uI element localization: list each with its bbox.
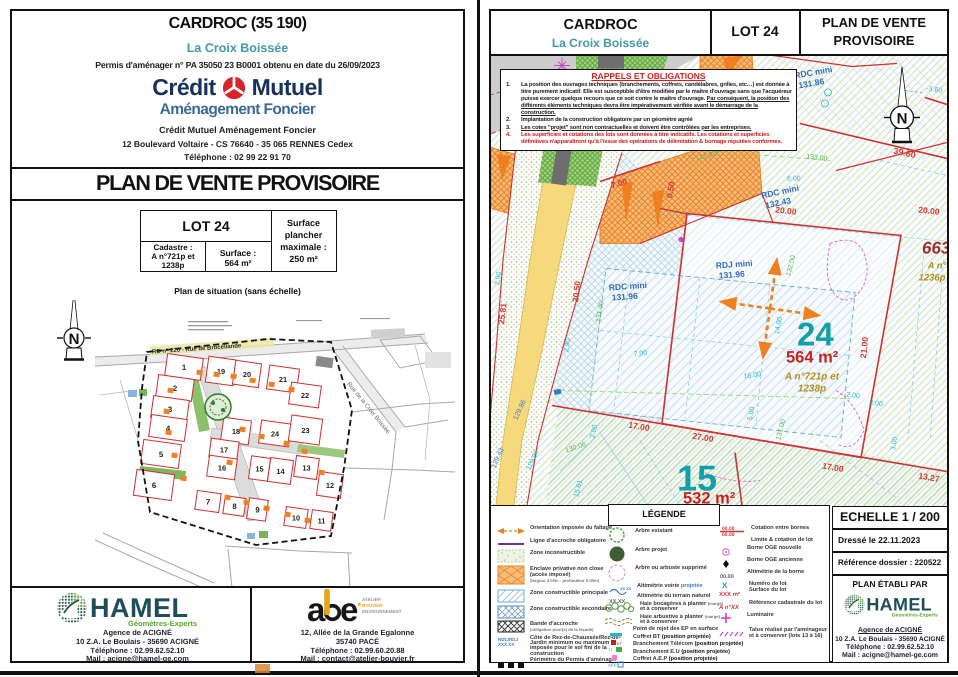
svg-text:24: 24	[271, 430, 280, 439]
svg-text:131.96: 131.96	[718, 268, 745, 280]
svg-text:00.00: 00.00	[722, 532, 735, 538]
svg-text:7: 7	[206, 498, 210, 507]
svg-text:23: 23	[301, 426, 309, 435]
svg-text:8: 8	[232, 502, 237, 511]
svg-text:ATELIER: ATELIER	[362, 597, 382, 602]
svg-text:22: 22	[301, 391, 309, 400]
svg-text:A n°XX: A n°XX	[718, 604, 740, 611]
svg-text:1: 1	[182, 363, 187, 372]
svg-text:BOUVIER: BOUVIER	[362, 603, 383, 608]
svg-text:1238p: 1238p	[798, 383, 826, 394]
svg-text:663: 663	[922, 238, 947, 257]
svg-text:X: X	[722, 581, 728, 590]
svg-text:XX.XX: XX.XX	[620, 587, 632, 591]
svg-text:9: 9	[255, 506, 260, 515]
svg-text:24: 24	[797, 315, 834, 352]
svg-text:1236p: 1236p	[919, 272, 946, 283]
svg-text:Géomètres-Experts: Géomètres-Experts	[128, 619, 197, 628]
svg-text:564 m²: 564 m²	[786, 348, 839, 366]
svg-text:N: N	[69, 331, 80, 348]
svg-text:20: 20	[243, 370, 251, 379]
svg-text:131.96: 131.96	[611, 290, 638, 302]
svg-text:13: 13	[302, 464, 310, 473]
svg-text:16: 16	[218, 464, 226, 473]
svg-text:18: 18	[232, 427, 240, 436]
svg-text:6.00: 6.00	[787, 175, 801, 182]
svg-text:21: 21	[279, 375, 287, 384]
svg-text:10: 10	[292, 514, 300, 523]
svg-text:17: 17	[220, 446, 228, 455]
svg-text:14: 14	[276, 467, 285, 476]
svg-text:5: 5	[159, 450, 164, 459]
svg-text:11: 11	[318, 517, 326, 526]
svg-text:XXX.XX: XXX.XX	[498, 642, 514, 647]
svg-text:AEP: AEP	[608, 663, 617, 668]
svg-text:e: e	[340, 591, 358, 626]
svg-text:Géomètres-Experts: Géomètres-Experts	[892, 612, 938, 618]
svg-text:15: 15	[255, 465, 263, 474]
svg-text:a: a	[307, 591, 326, 626]
svg-text:ENVIRONNEMENT: ENVIRONNEMENT	[362, 609, 402, 614]
svg-text:6: 6	[152, 481, 157, 490]
svg-text:XXX m²: XXX m²	[719, 591, 740, 597]
svg-text:A n°721p et: A n°721p et	[784, 371, 840, 382]
svg-text:N: N	[897, 110, 908, 127]
svg-text:12: 12	[326, 481, 334, 490]
svg-text:A n°: A n°	[927, 260, 947, 271]
